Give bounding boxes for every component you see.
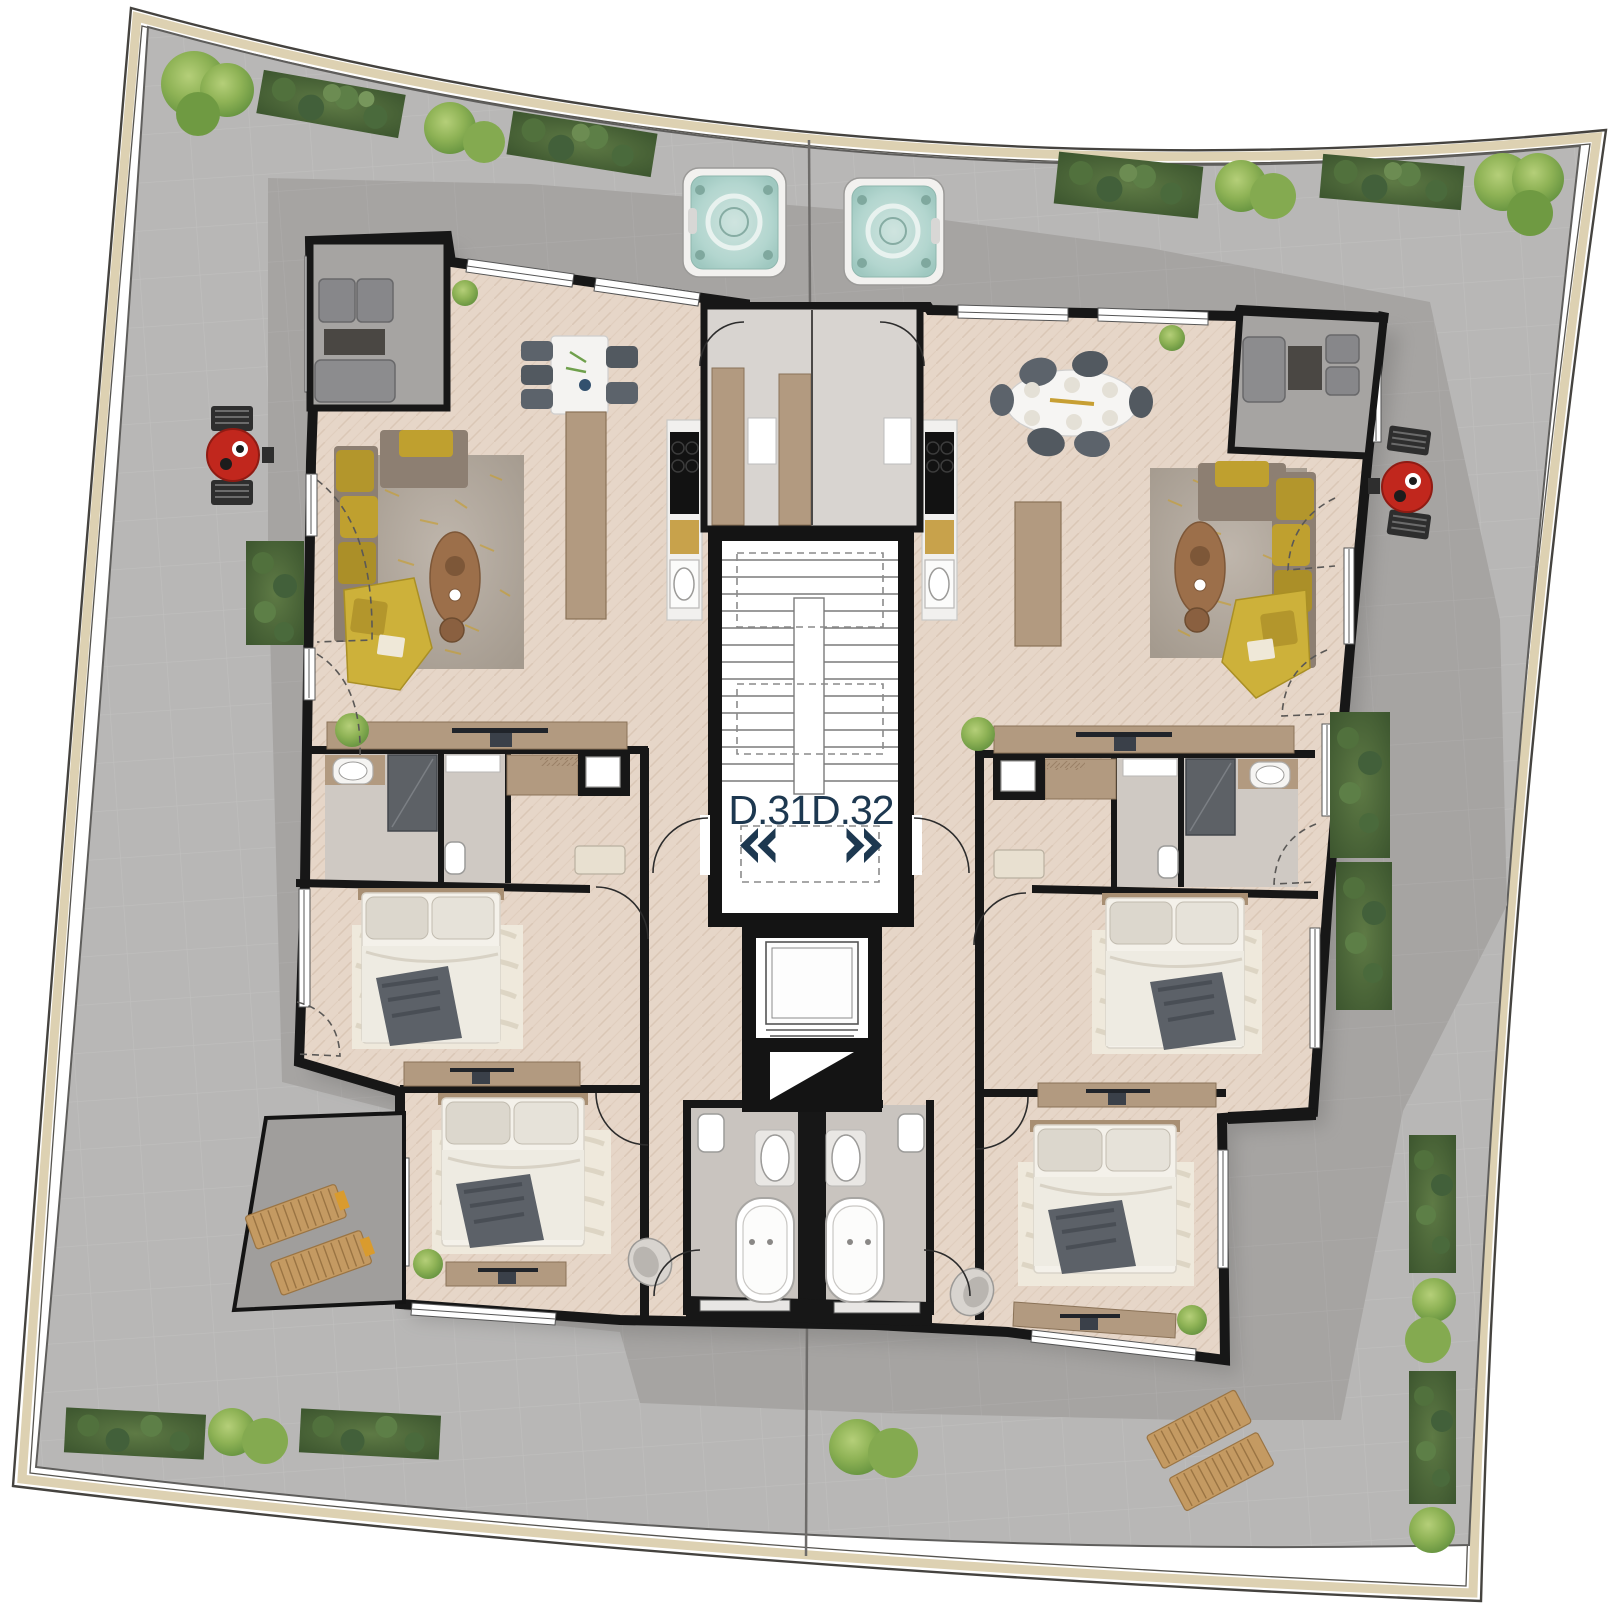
svg-text:D.31D.32: D.31D.32 [728,787,893,833]
